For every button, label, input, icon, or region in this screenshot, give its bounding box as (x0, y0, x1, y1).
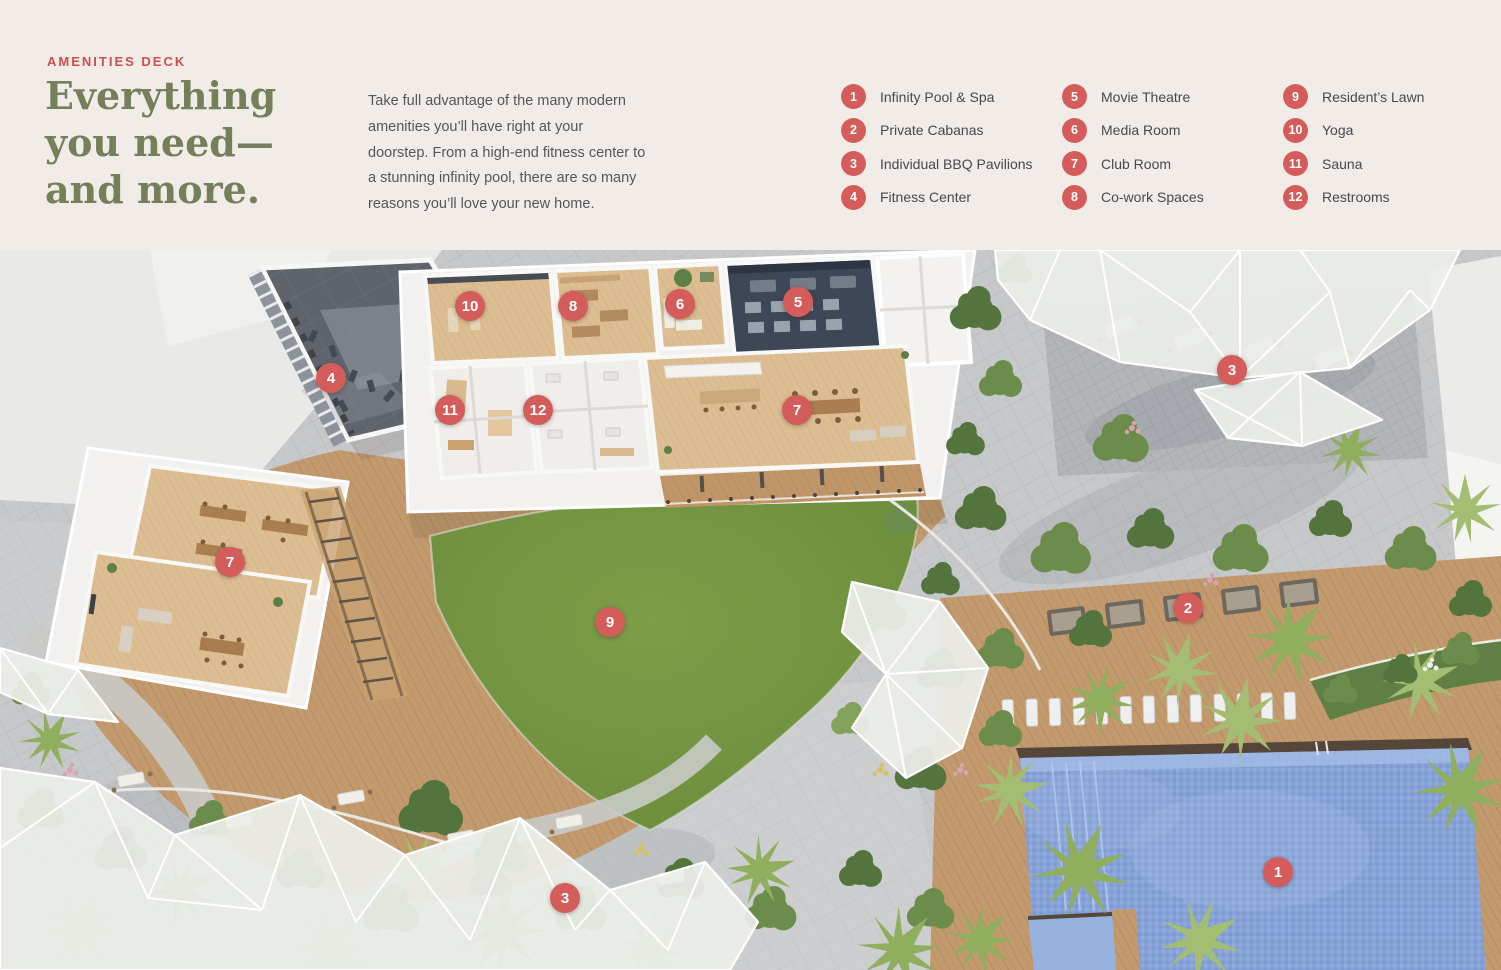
legend-item: 7 Club Room (1062, 151, 1204, 176)
legend-badge: 9 (1283, 84, 1308, 109)
legend-badge: 11 (1283, 151, 1308, 176)
amenities-map: 41086511127379213 (0, 250, 1501, 970)
pool-area (930, 556, 1501, 970)
legend-column-2: 5 Movie Theatre 6 Media Room 7 Club Room… (1062, 84, 1204, 218)
legend-badge: 6 (1062, 118, 1087, 143)
legend-label: Media Room (1101, 122, 1180, 138)
map-marker-3: 3 (1217, 355, 1247, 385)
legend-badge: 3 (841, 151, 866, 176)
legend-item: 5 Movie Theatre (1062, 84, 1204, 109)
map-marker-9: 9 (595, 607, 625, 637)
legend-label: Restrooms (1322, 189, 1390, 205)
legend-item: 2 Private Cabanas (841, 118, 1033, 143)
page-title: Everything you need— and more. (45, 72, 276, 213)
legend-label: Movie Theatre (1101, 89, 1190, 105)
map-marker-1: 1 (1263, 857, 1293, 887)
legend-item: 3 Individual BBQ Pavilions (841, 151, 1033, 176)
legend-label: Resident’s Lawn (1322, 89, 1424, 105)
legend-item: 1 Infinity Pool & Spa (841, 84, 1033, 109)
legend-item: 6 Media Room (1062, 118, 1204, 143)
map-marker-7: 7 (215, 547, 245, 577)
legend-item: 8 Co-work Spaces (1062, 185, 1204, 210)
header-section: AMENITIES DECK Everything you need— and … (0, 0, 1501, 250)
map-marker-10: 10 (455, 291, 485, 321)
legend-badge: 8 (1062, 185, 1087, 210)
map-marker-7: 7 (782, 395, 812, 425)
legend-badge: 1 (841, 84, 866, 109)
legend-badge: 7 (1062, 151, 1087, 176)
legend-badge: 5 (1062, 84, 1087, 109)
legend-badge: 4 (841, 185, 866, 210)
map-marker-6: 6 (665, 289, 695, 319)
map-marker-3: 3 (550, 883, 580, 913)
legend-badge: 12 (1283, 185, 1308, 210)
map-marker-4: 4 (316, 363, 346, 393)
legend-label: Fitness Center (880, 189, 971, 205)
map-marker-2: 2 (1173, 593, 1203, 623)
map-marker-8: 8 (558, 291, 588, 321)
legend-item: 10 Yoga (1283, 118, 1424, 143)
legend-badge: 10 (1283, 118, 1308, 143)
map-marker-12: 12 (523, 395, 553, 425)
legend-label: Sauna (1322, 156, 1362, 172)
legend-badge: 2 (841, 118, 866, 143)
legend-column-3: 9 Resident’s Lawn 10 Yoga 11 Sauna 12 Re… (1283, 84, 1424, 218)
intro-paragraph: Take full advantage of the many modern a… (368, 89, 646, 218)
legend-label: Individual BBQ Pavilions (880, 156, 1033, 172)
map-marker-5: 5 (783, 287, 813, 317)
section-label: AMENITIES DECK (47, 54, 186, 69)
legend-label: Co-work Spaces (1101, 189, 1204, 205)
map-marker-11: 11 (435, 395, 465, 425)
amenities-page: AMENITIES DECK Everything you need— and … (0, 0, 1501, 970)
legend-label: Private Cabanas (880, 122, 984, 138)
legend-item: 12 Restrooms (1283, 185, 1424, 210)
legend-label: Yoga (1322, 122, 1353, 138)
legend-item: 9 Resident’s Lawn (1283, 84, 1424, 109)
legend-column-1: 1 Infinity Pool & Spa 2 Private Cabanas … (841, 84, 1033, 218)
legend-item: 4 Fitness Center (841, 185, 1033, 210)
legend-label: Infinity Pool & Spa (880, 89, 994, 105)
legend-item: 11 Sauna (1283, 151, 1424, 176)
legend-label: Club Room (1101, 156, 1171, 172)
indoor-amenities-building (400, 250, 975, 512)
